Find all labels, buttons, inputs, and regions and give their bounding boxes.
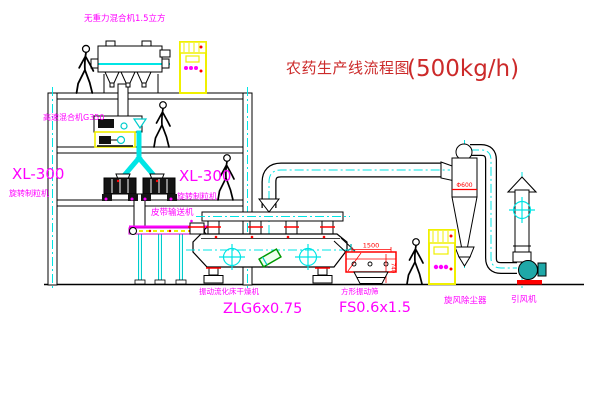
title-capacity: (500kg/h) — [407, 56, 519, 82]
feed-downpipe — [118, 84, 128, 118]
mixer-discharge-funnels — [105, 72, 151, 87]
worker-floor2 — [154, 102, 170, 147]
fan-motor — [538, 263, 546, 276]
cabinet2-pilot-light — [450, 235, 453, 238]
label-cyclone: 旋风除尘器 — [444, 295, 487, 306]
label-granulator-model-left: XL-300 — [12, 165, 64, 183]
drawing-title: 农药生产线流程图 (500kg/h) — [286, 56, 519, 82]
label-induced-draft-fan: 引风机 — [511, 294, 537, 305]
cyclone-diameter-dim: Φ600 — [456, 182, 472, 189]
screen-height-dim: 740 — [390, 263, 396, 274]
granulator-right — [141, 174, 177, 201]
fluid-bed-dryer — [186, 199, 356, 283]
fan-scroll — [519, 261, 538, 280]
diagram-canvas: 1500 740 Φ600 — [0, 0, 600, 403]
worker-ground — [407, 239, 423, 284]
gravity-mixer — [91, 41, 170, 93]
flow-symbol — [509, 197, 535, 223]
cyclone-cylinder — [452, 158, 477, 197]
fan-base — [517, 280, 542, 285]
title-text: 农药生产线流程图 — [286, 59, 410, 77]
label-high-speed-mixer: 高速混合机G350 — [43, 112, 104, 122]
control-cabinet-2 — [429, 230, 455, 284]
label-granulator-name-left: 旋转制粒机 — [9, 188, 49, 198]
cabinet1-knob — [194, 66, 198, 70]
roof-slab — [48, 93, 252, 99]
cabinet1-knob — [189, 66, 193, 70]
granulator-left — [102, 174, 138, 201]
floor2-slab — [48, 147, 252, 153]
cabinet2-knob — [444, 265, 448, 269]
control-cabinet-1 — [180, 42, 206, 93]
cyclone-unit: Φ600 — [452, 140, 517, 270]
cabinet1-pilot-light — [200, 70, 203, 73]
label-screen-name: 方形振动筛 — [341, 286, 379, 296]
label-gravity-mixer: 无重力混合机1.5立方 — [84, 13, 166, 24]
cabinet2-knob — [439, 265, 443, 269]
cabinet1-knob — [184, 66, 188, 70]
label-dryer-name: 振动流化床干燥机 — [199, 286, 259, 296]
process-flow-diagram: 1500 740 Φ600 — [0, 0, 600, 403]
dryer-feed-inlet — [188, 220, 205, 234]
label-granulator-model-right: XL-300 — [179, 167, 231, 185]
cabinet1-pilot-light — [200, 46, 203, 49]
label-dryer-model: ZLG6x0.75 — [223, 301, 302, 317]
label-granulator-name-right: 旋转制粒机 — [177, 191, 217, 201]
label-belt-conveyor: 皮带输送机 — [151, 207, 194, 218]
label-screen-model: FS0.6x1.5 — [339, 300, 411, 316]
dryer-supports — [204, 268, 332, 283]
cabinet2-pilot-light — [450, 268, 453, 271]
worker-roof — [77, 45, 94, 93]
mixer-motor-unit — [95, 132, 135, 147]
cabinet2-knob — [434, 265, 438, 269]
screen-length-dim: 1500 — [363, 242, 380, 250]
